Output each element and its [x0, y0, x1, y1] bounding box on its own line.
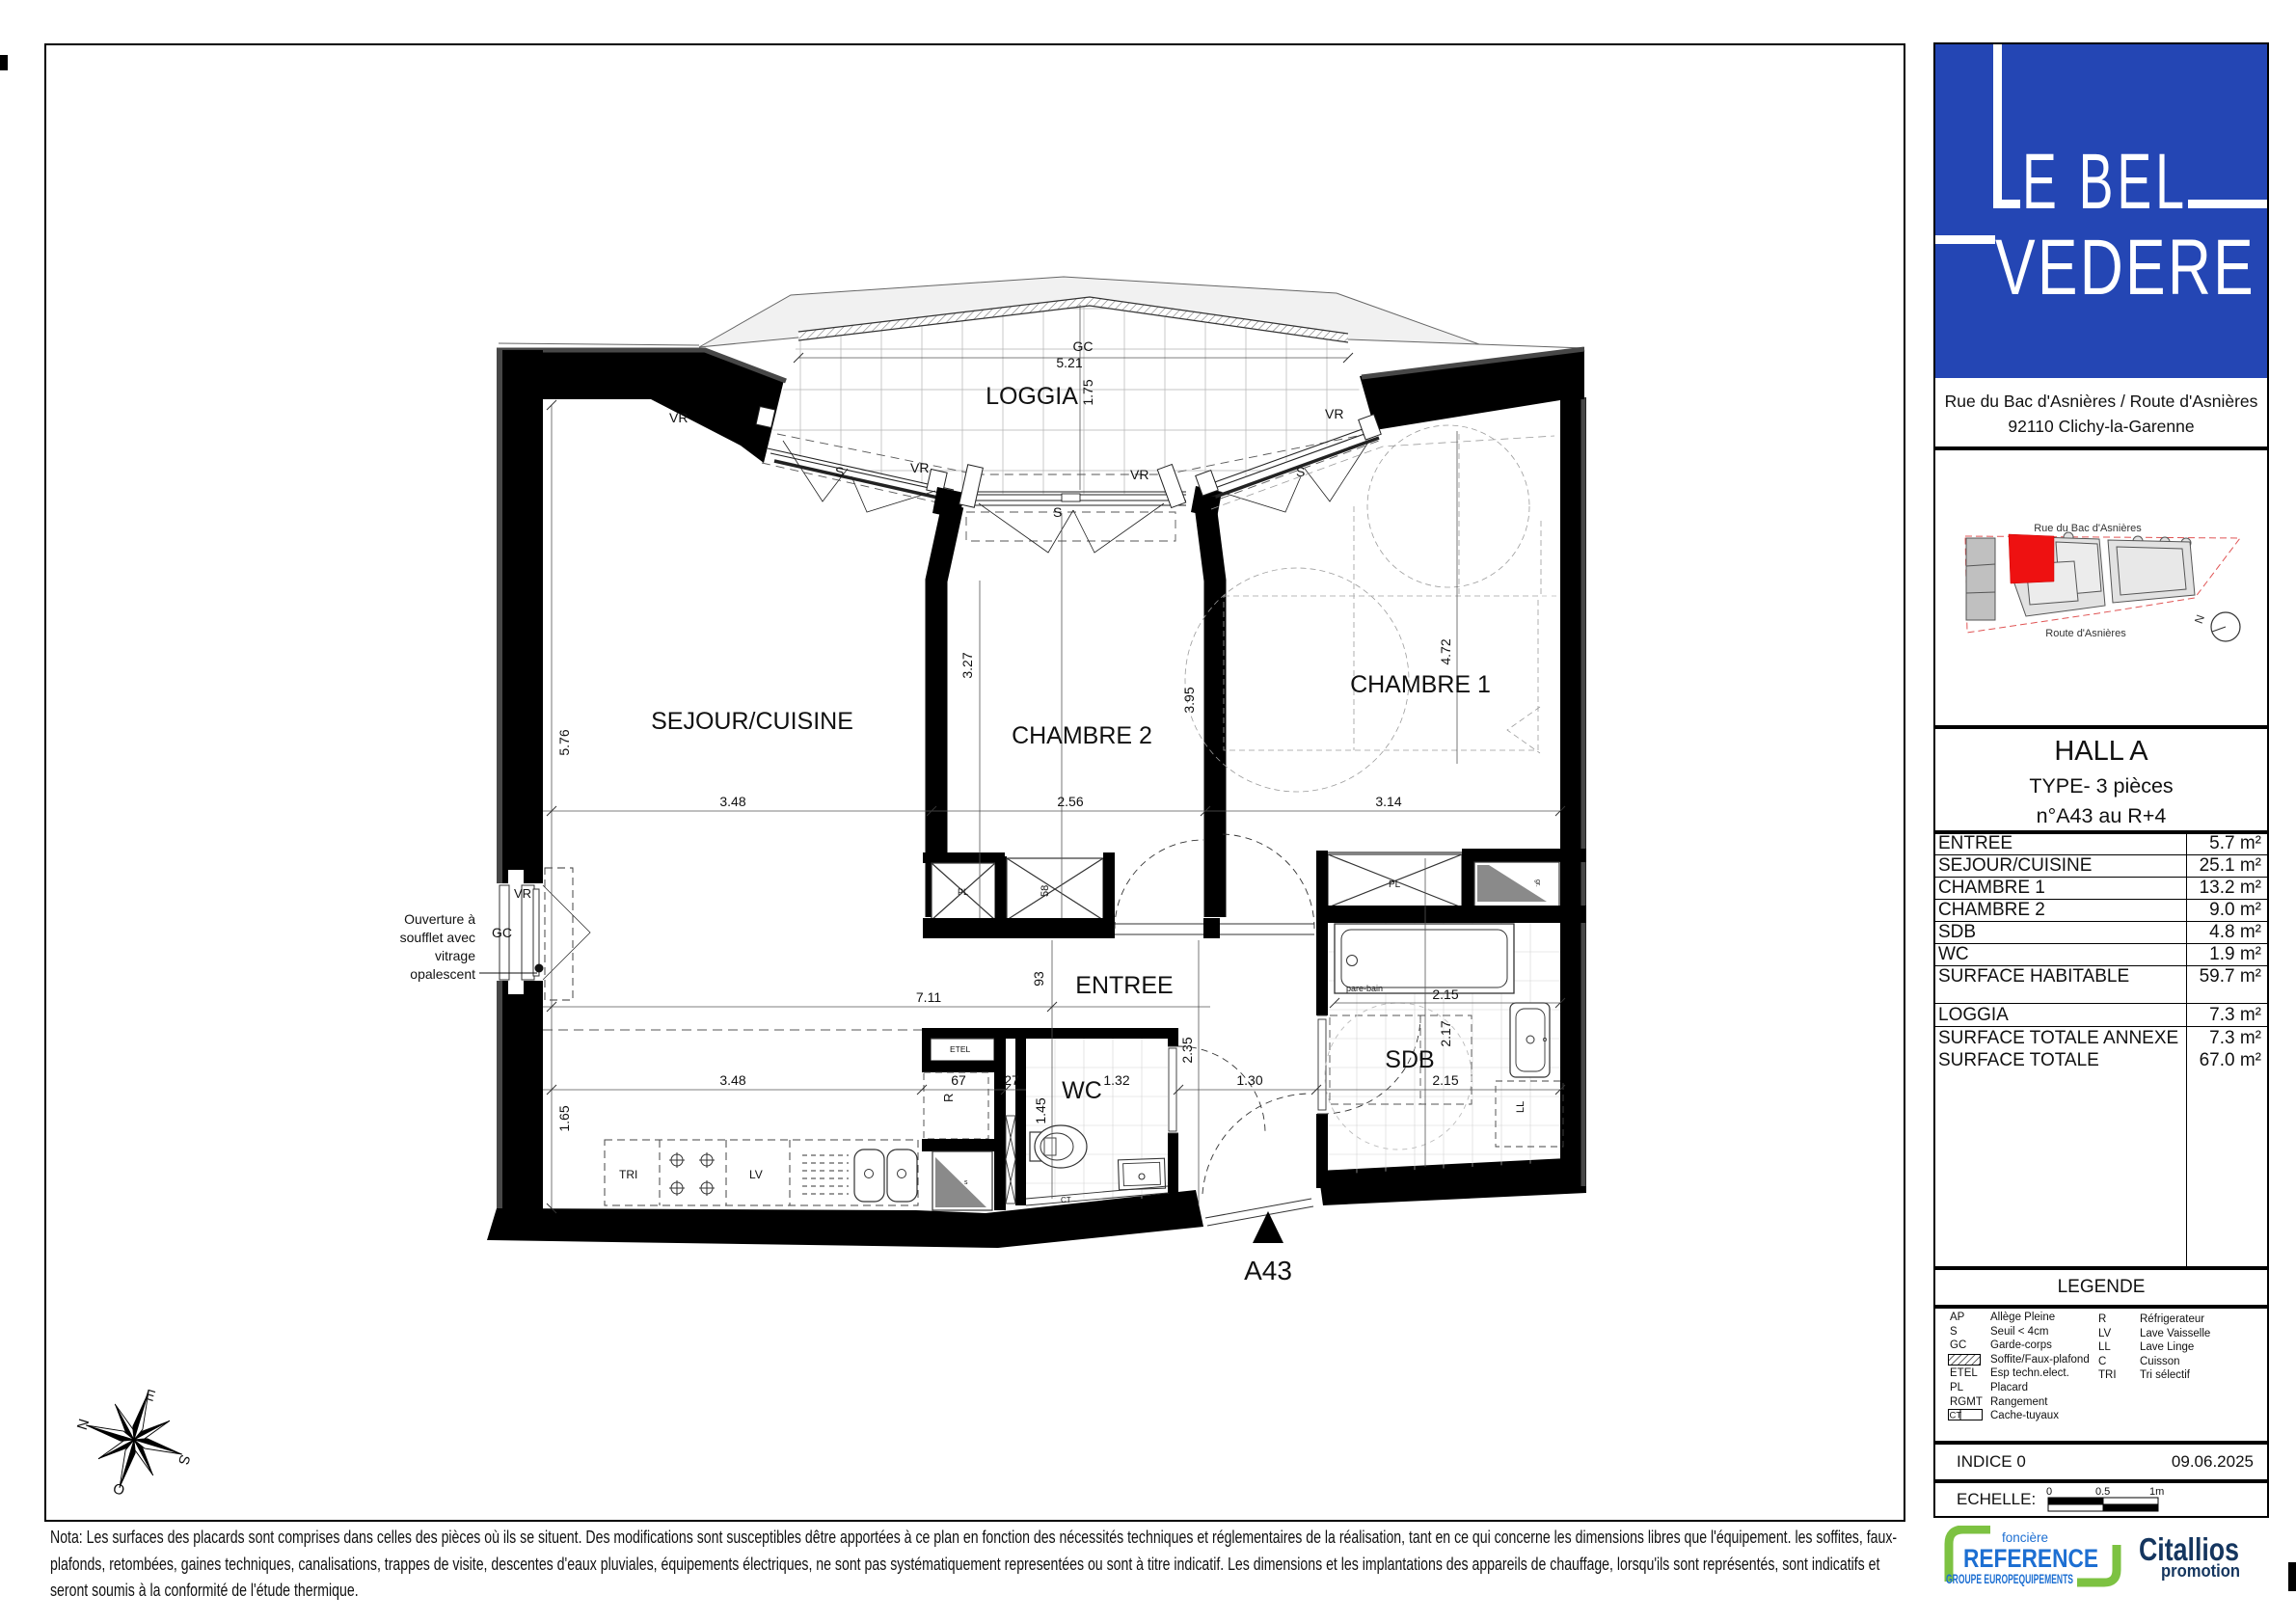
svg-text:CT: CT [1061, 1196, 1071, 1204]
svg-text:0.5: 0.5 [2095, 1486, 2110, 1498]
svg-text:1.30: 1.30 [1236, 1072, 1262, 1088]
svg-text:3.14: 3.14 [1375, 794, 1401, 809]
svg-text:VR: VR [669, 410, 688, 425]
svg-text:PL: PL [958, 887, 968, 897]
svg-text:WC: WC [1062, 1077, 1102, 1104]
svg-text:E: E [143, 1387, 157, 1405]
svg-text:GROUPE EUROPEQUIPEMENTS: GROUPE EUROPEQUIPEMENTS [1946, 1572, 2073, 1586]
svg-text:SDB: SDB [1385, 1046, 1434, 1073]
svg-text:ETEL: ETEL [950, 1044, 971, 1054]
svg-text:VR: VR [1325, 406, 1343, 421]
svg-text:LL: LL [1515, 1101, 1526, 1113]
svg-text:5.76: 5.76 [556, 729, 572, 755]
svg-text:S: S [175, 1452, 193, 1467]
svg-text:Rue du Bac d'Asnières: Rue du Bac d'Asnières [2034, 523, 2142, 534]
svg-text:3.48: 3.48 [719, 1072, 745, 1088]
svg-text:S: S [835, 464, 844, 479]
svg-text:VR: VR [910, 460, 929, 475]
svg-text:R: R [941, 1094, 956, 1102]
svg-text:s: s [964, 1179, 968, 1186]
svg-text:58: 58 [1040, 885, 1051, 897]
svg-text:3.27: 3.27 [959, 652, 975, 678]
svg-text:CHAMBRE 1: CHAMBRE 1 [1350, 671, 1491, 698]
svg-text:5.21: 5.21 [1056, 355, 1082, 370]
svg-text:LOGGIA: LOGGIA [986, 383, 1078, 410]
svg-text:7.11: 7.11 [916, 989, 941, 1005]
svg-text:gr.: gr. [1534, 879, 1541, 887]
svg-text:VR: VR [514, 886, 531, 901]
svg-text:4.72: 4.72 [1438, 638, 1453, 664]
svg-text:2.17: 2.17 [1438, 1020, 1453, 1046]
svg-text:VR: VR [1130, 467, 1148, 482]
svg-text:LV: LV [749, 1168, 763, 1181]
svg-text:REFERENCE: REFERENCE [1963, 1544, 2098, 1573]
svg-text:1.45: 1.45 [1033, 1097, 1048, 1123]
svg-text:vitrage: vitrage [435, 948, 475, 963]
svg-text:93: 93 [1031, 971, 1046, 987]
svg-text:SEJOUR/CUISINE: SEJOUR/CUISINE [651, 708, 853, 735]
svg-text:soufflet avec: soufflet avec [400, 930, 475, 945]
svg-text:A43: A43 [1244, 1256, 1292, 1285]
svg-text:27: 27 [1004, 1072, 1019, 1088]
svg-text:CT: CT [1950, 1411, 1962, 1421]
svg-text:0: 0 [2046, 1486, 2052, 1498]
svg-text:Route d'Asnières: Route d'Asnières [2045, 628, 2126, 639]
svg-text:N: N [74, 1417, 93, 1431]
svg-text:2.15: 2.15 [1432, 1072, 1458, 1088]
svg-text:promotion: promotion [2161, 1560, 2240, 1581]
svg-text:2.35: 2.35 [1179, 1037, 1195, 1063]
svg-text:ENTREE: ENTREE [1075, 972, 1173, 999]
svg-text:O: O [111, 1479, 126, 1499]
svg-text:1.65: 1.65 [556, 1105, 572, 1131]
svg-text:2.15: 2.15 [1432, 987, 1458, 1002]
svg-text:1.32: 1.32 [1103, 1072, 1129, 1088]
svg-text:S: S [1296, 464, 1305, 479]
svg-text:Ouverture à: Ouverture à [404, 911, 475, 927]
svg-text:N: N [2192, 613, 2207, 626]
svg-text:opalescent: opalescent [410, 966, 475, 982]
svg-text:TRI: TRI [619, 1168, 637, 1181]
svg-text:1m: 1m [2149, 1486, 2164, 1498]
svg-text:67: 67 [951, 1072, 966, 1088]
svg-text:pare-bain: pare-bain [1346, 984, 1383, 993]
svg-text:CHAMBRE 2: CHAMBRE 2 [1012, 722, 1152, 749]
svg-text:2.56: 2.56 [1057, 794, 1083, 809]
svg-text:S: S [1053, 504, 1062, 520]
svg-text:foncière: foncière [2002, 1530, 2048, 1545]
svg-text:GC: GC [1073, 338, 1094, 354]
svg-text:3.48: 3.48 [719, 794, 745, 809]
svg-text:3.95: 3.95 [1181, 687, 1197, 713]
svg-text:GC: GC [492, 925, 512, 940]
svg-text:1.75: 1.75 [1080, 379, 1095, 405]
svg-text:PL: PL [1389, 879, 1401, 890]
